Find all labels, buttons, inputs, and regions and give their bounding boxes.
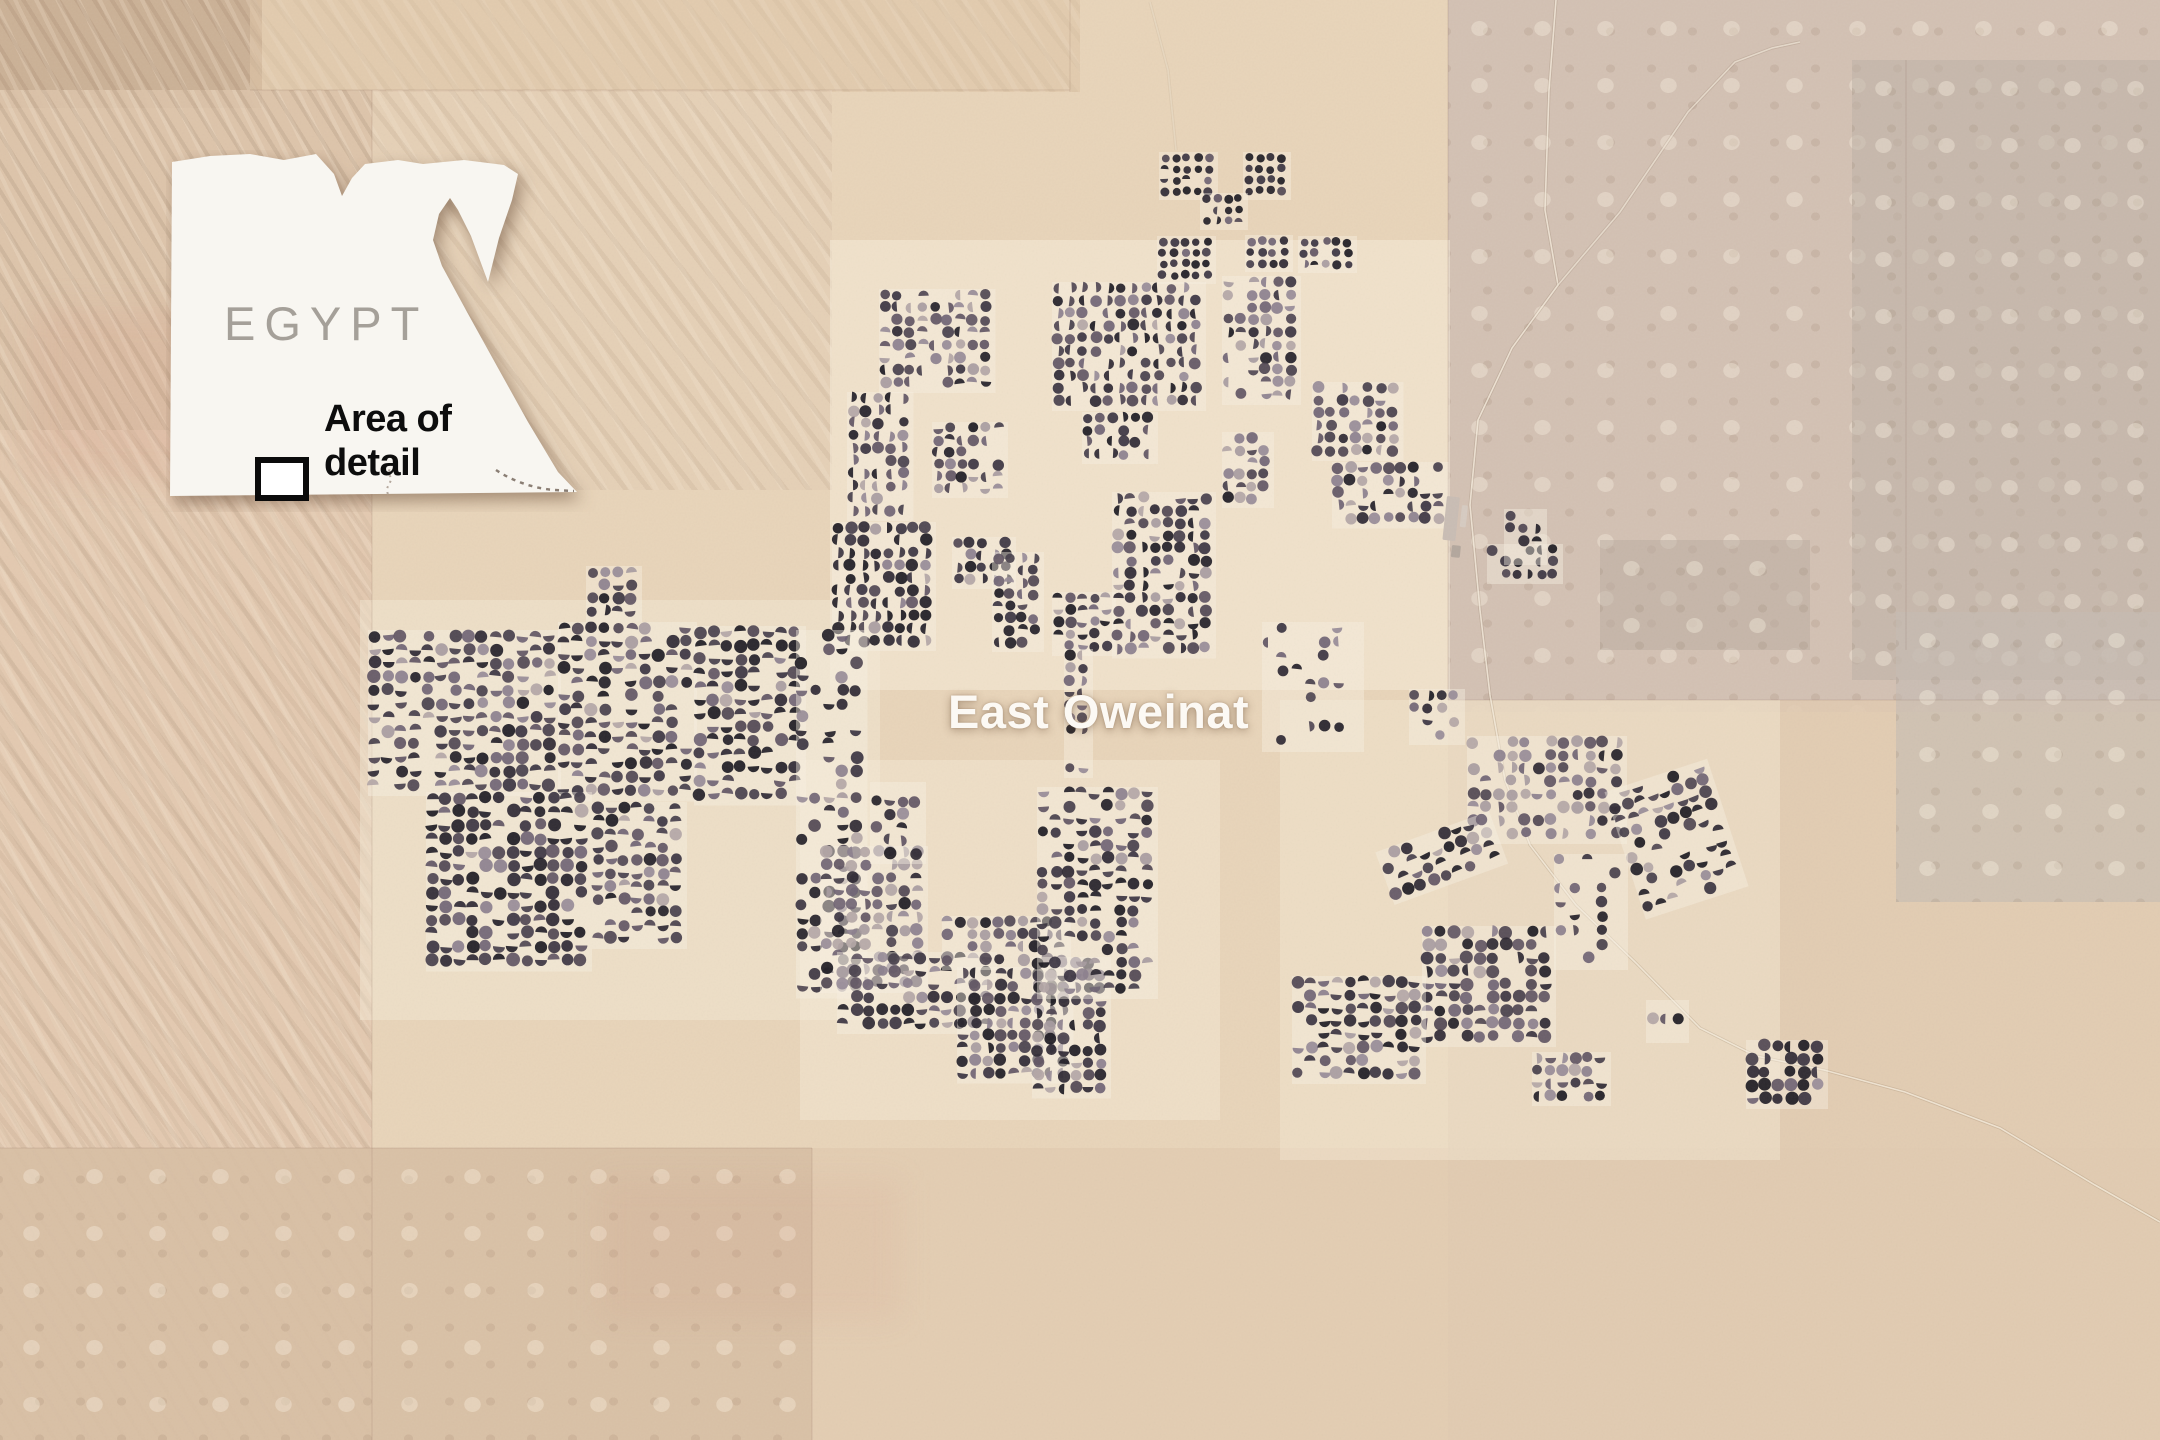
pivot-circle [721, 640, 732, 651]
pivot-circle [1019, 1055, 1030, 1066]
pivot-circle [1506, 775, 1517, 786]
pivot-circle [880, 301, 891, 312]
pivot-circle [1388, 421, 1398, 431]
pivot-circle [1319, 720, 1331, 732]
pivot-circle [1499, 926, 1512, 939]
pivot-circle [1064, 970, 1076, 982]
pivot-circle [956, 364, 965, 373]
pivot-circle [934, 484, 943, 493]
pivot-circle [646, 906, 656, 916]
pivot-circle [1189, 358, 1201, 370]
region-label: East Oweinat [948, 684, 1249, 739]
pivot-circle [426, 953, 439, 966]
pivot-circle [945, 458, 956, 469]
pivot-circle [954, 352, 966, 364]
area-of-detail-line1: Area of [324, 398, 451, 440]
pivot-circle [1031, 1045, 1043, 1057]
pivot-circle [544, 658, 555, 669]
pivot-circle [823, 644, 835, 656]
area-of-detail-line2: detail [324, 442, 420, 484]
pivot-circle [1138, 630, 1150, 642]
pivot-circle [1699, 785, 1712, 798]
pivot-circle [532, 657, 542, 667]
pivot-circle [626, 649, 637, 660]
pivot-circle [516, 764, 528, 776]
pivot-circle [1285, 352, 1296, 363]
pivot-circle [619, 892, 631, 904]
desert-road [1470, 0, 2160, 1222]
pivot-circle [1064, 906, 1074, 916]
pivot-circle [1548, 556, 1558, 566]
pivot-circle [1279, 259, 1288, 268]
pivot-circle [494, 887, 507, 900]
pivot-circle [872, 442, 884, 454]
pivot-circle [1538, 1030, 1551, 1043]
pivot-circle [477, 753, 489, 765]
pivot-circle [652, 758, 663, 769]
pivot-circle [1039, 982, 1050, 993]
pivot-circle [1257, 480, 1268, 491]
pivot-circle [1064, 877, 1076, 889]
pivot-circle [971, 1042, 982, 1053]
pivot-circle [1278, 666, 1289, 677]
pivot-circle [748, 625, 760, 637]
pivot-circle [965, 561, 976, 572]
pivot-circle [671, 932, 682, 943]
pivot-circle [1004, 625, 1015, 636]
pivot-circle [1546, 789, 1556, 799]
pivot-circle [858, 521, 869, 532]
pivot-circle [693, 789, 705, 801]
pivot-circle [1176, 505, 1188, 517]
pivot-circle [1065, 650, 1076, 661]
pivot-circle [1357, 476, 1367, 486]
pivot-circle [480, 819, 491, 830]
pivot-circle [1049, 916, 1062, 929]
pivot-circle [775, 694, 788, 707]
pivot-circle [1276, 735, 1286, 745]
pivot-circle [846, 574, 856, 584]
pivot-circle [1383, 975, 1395, 987]
pivot-circle [1224, 314, 1234, 324]
pivot-circle [930, 302, 940, 312]
satellite-map-page: { "satellite": { "region_label": "East O… [0, 0, 2160, 1440]
pivot-circle [821, 962, 833, 974]
pivot-circle [1126, 507, 1136, 517]
pivot-circle [1064, 801, 1076, 813]
pivot-circle [1449, 717, 1459, 727]
pivot-circle [1448, 1004, 1461, 1017]
pivot-circle [1434, 1017, 1447, 1030]
pivot-circle [611, 771, 623, 783]
pivot-circle [897, 807, 909, 819]
pivot-circle [656, 893, 669, 906]
pivot-circle [1332, 486, 1344, 498]
pivot-circle [1268, 175, 1276, 183]
pivot-circle [734, 760, 746, 772]
pivot-circle [1107, 412, 1118, 423]
pivot-circle [1179, 372, 1188, 381]
pivot-circle [1112, 630, 1123, 641]
pivot-circle [943, 377, 954, 388]
pivot-circle [572, 717, 584, 729]
pivot-circle [1187, 642, 1199, 654]
pivot-circle [1310, 248, 1319, 257]
pivot-circle [1409, 702, 1418, 711]
pivot-circle [909, 610, 920, 621]
pivot-circle [1586, 751, 1596, 761]
pivot-circle [558, 661, 571, 674]
settlement-building [1451, 545, 1461, 558]
pivot-circle [850, 820, 863, 833]
pivot-circle [1004, 588, 1015, 599]
pivot-circle [892, 291, 901, 300]
pivot-circle [1280, 236, 1288, 244]
pivot-circle [1422, 938, 1435, 951]
pivot-circle [1116, 957, 1127, 968]
pivot-circle [502, 671, 514, 683]
pivot-circle [1786, 1092, 1799, 1105]
pivot-circle [1066, 630, 1075, 639]
pivot-circle [889, 1017, 901, 1029]
pivot-circle [821, 977, 832, 988]
pivot-circle [559, 703, 571, 715]
pivot-circle [1083, 426, 1093, 436]
pivot-circle [477, 685, 488, 696]
pivot-circle [1200, 530, 1210, 540]
pivot-circle [1174, 542, 1185, 553]
pivot-circle [667, 635, 680, 648]
pivot-circle [846, 884, 858, 896]
pivot-circle [1114, 905, 1125, 916]
pivot-circle [492, 846, 505, 859]
pivot-circle [1586, 777, 1597, 788]
pivot-circle [491, 752, 502, 763]
pivot-circle [1103, 826, 1113, 836]
pivot-circle [1268, 238, 1276, 246]
pivot-circle [1165, 334, 1175, 344]
pivot-circle [1487, 991, 1500, 1004]
pivot-circle [1190, 295, 1201, 306]
pivot-circle [427, 873, 438, 884]
pivot-circle [899, 885, 910, 896]
pivot-circle [543, 738, 556, 751]
pivot-circle [1116, 309, 1126, 319]
pivot-circle [1141, 295, 1152, 306]
pivot-circle [942, 340, 952, 350]
pivot-circle [438, 886, 451, 899]
pivot-circle [1634, 837, 1645, 848]
pivot-circle [1095, 1083, 1106, 1094]
pivot-circle [1526, 939, 1537, 950]
pivot-circle [657, 816, 668, 827]
pivot-circle [490, 658, 502, 670]
pivot-circle [720, 694, 733, 707]
pivot-circle [1258, 445, 1269, 456]
pivot-circle [968, 459, 979, 470]
pivot-circle [1320, 1055, 1331, 1066]
pivot-circle [1384, 512, 1394, 522]
pivot-circle [1089, 825, 1101, 837]
pivot-circle [808, 926, 821, 939]
pivot-circle [573, 730, 584, 741]
pivot-circle [869, 621, 881, 633]
pivot-circle [1705, 798, 1717, 810]
pivot-circle [1020, 968, 1031, 979]
pivot-circle [1119, 450, 1129, 460]
pivot-circle [1058, 1071, 1070, 1083]
pivot-circle [1331, 475, 1343, 487]
pivot-circle [1647, 1012, 1659, 1024]
pivot-circle [530, 739, 542, 751]
pivot-circle [670, 905, 682, 917]
pivot-circle [981, 301, 992, 312]
pivot-circle [1091, 854, 1102, 865]
pivot-circle [1571, 801, 1583, 813]
pivot-circle [507, 804, 521, 818]
pivot-circle [521, 925, 534, 938]
pivot-circle [1051, 866, 1063, 878]
pivot-circle [543, 685, 553, 695]
pivot-circle [835, 671, 847, 683]
pivot-circle [1409, 690, 1419, 700]
pivot-circle [1396, 1002, 1408, 1014]
pivot-circle [1437, 703, 1447, 713]
pivot-circle [1020, 1018, 1031, 1029]
pivot-circle [1247, 290, 1258, 301]
pivot-circle [1170, 259, 1178, 267]
pivot-circle [1167, 395, 1177, 405]
pivot-circle [1038, 826, 1048, 836]
pivot-circle [1054, 395, 1065, 406]
pivot-circle [1798, 1092, 1811, 1105]
pivot-circle [613, 592, 625, 604]
pivot-circle [502, 724, 515, 737]
pivot-circle [994, 1053, 1006, 1065]
pivot-circle [507, 832, 520, 845]
pivot-circle [548, 899, 560, 911]
pivot-circle [1548, 544, 1557, 553]
pivot-circle [846, 938, 856, 948]
pivot-circle [863, 1006, 874, 1017]
pivot-circle [1332, 260, 1341, 269]
pivot-circle [977, 563, 986, 572]
pivot-circle [850, 977, 862, 989]
pivot-circle [1018, 954, 1030, 966]
pivot-circle [479, 859, 492, 872]
pivot-circle [1344, 474, 1356, 486]
pivot-half-circle [1357, 975, 1369, 982]
pivot-circle [693, 652, 705, 664]
pivot-circle [1512, 1030, 1524, 1042]
pivot-circle [1005, 612, 1016, 623]
pivot-circle [652, 649, 665, 662]
pivot-circle [1326, 420, 1337, 431]
pivot-circle [1033, 1069, 1044, 1080]
pivot-circle [1357, 512, 1369, 524]
pivot-circle [605, 869, 616, 880]
pivot-circle [1083, 1046, 1093, 1056]
pivot-circle [885, 444, 896, 455]
pivot-circle [1223, 468, 1234, 479]
pivot-circle [490, 644, 503, 657]
pivot-circle [668, 785, 678, 795]
pivot-circle [968, 363, 980, 375]
pivot-circle [1173, 154, 1181, 162]
pivot-circle [670, 828, 682, 840]
pivot-circle [1191, 382, 1202, 393]
pivot-circle [1006, 930, 1016, 940]
pivot-circle [916, 992, 927, 1003]
pivot-circle [1204, 271, 1212, 279]
pivot-circle [598, 783, 610, 795]
pivot-circle [1095, 1069, 1107, 1081]
pivot-circle [966, 549, 977, 560]
pivot-circle [1557, 1090, 1568, 1101]
pivot-circle [886, 482, 896, 492]
pivot-circle [957, 1018, 967, 1028]
pivot-circle [934, 459, 944, 469]
pivot-circle [899, 897, 911, 909]
pivot-circle [1494, 750, 1506, 762]
pivot-circle [889, 965, 901, 977]
pivot-circle [1476, 814, 1487, 825]
pivot-circle [1558, 737, 1569, 748]
pivot-circle [1183, 186, 1191, 194]
pivot-circle [453, 833, 464, 844]
pivot-circle [891, 314, 902, 325]
pivot-circle [1214, 194, 1223, 203]
pivot-circle [1077, 332, 1087, 342]
pivot-circle [1667, 812, 1679, 824]
pivot-circle [1077, 930, 1088, 941]
pivot-circle [478, 644, 489, 655]
pivot-circle [983, 1028, 995, 1040]
pivot-circle [478, 697, 489, 708]
pivot-circle [1234, 433, 1244, 443]
pivot-circle [1471, 844, 1482, 855]
pivot-circle [1102, 641, 1112, 651]
pivot-circle [1758, 1078, 1771, 1091]
pivot-circle [882, 560, 892, 570]
pivot-circle [1584, 788, 1595, 799]
pivot-circle [600, 704, 612, 716]
pivot-circle [1182, 154, 1190, 162]
pivot-circle [1448, 690, 1457, 699]
pivot-circle [903, 991, 915, 1003]
pivot-circle [1597, 939, 1608, 950]
pivot-circle [946, 470, 957, 481]
pivot-circle [1016, 637, 1027, 648]
pivot-circle [944, 447, 955, 458]
pivot-circle [1247, 469, 1257, 479]
pivot-circle [1201, 493, 1212, 504]
pivot-circle [983, 1067, 994, 1078]
pivot-circle [1518, 535, 1529, 546]
pivot-circle [1583, 952, 1595, 964]
pivot-circle [1154, 370, 1164, 380]
pivot-circle [1115, 800, 1125, 810]
pivot-circle [1200, 605, 1212, 617]
pivot-circle [574, 792, 585, 803]
pivot-circle [1016, 612, 1027, 623]
pivot-circle [1286, 314, 1296, 324]
pivot-circle [1311, 445, 1322, 456]
pivot-circle [1508, 751, 1518, 761]
pivot-circle [1525, 965, 1537, 977]
pivot-circle [1065, 334, 1075, 344]
pivot-circle [735, 679, 748, 692]
pivot-circle [478, 847, 491, 860]
pivot-circle [1162, 155, 1170, 163]
pivot-circle [1704, 882, 1716, 894]
pivot-circle [1151, 556, 1161, 566]
pivot-circle [1538, 952, 1549, 963]
pivot-circle [653, 730, 666, 743]
pivot-circle [1435, 1006, 1446, 1017]
pivot-circle [572, 623, 584, 635]
pivot-circle [1784, 1078, 1797, 1091]
pivot-circle [1376, 421, 1386, 431]
pivot-circle [547, 872, 559, 884]
pivot-circle [1345, 990, 1356, 1001]
pivot-circle [1285, 326, 1296, 337]
pivot-circle [591, 827, 603, 839]
pivot-circle [1435, 939, 1447, 951]
pivot-circle [808, 819, 821, 832]
pivot-circle [1158, 270, 1167, 279]
pivot-circle [1083, 414, 1092, 423]
pivot-circle [1058, 1032, 1070, 1044]
pivot-circle [466, 872, 479, 885]
pivot-circle [1076, 968, 1088, 980]
pivot-circle [1343, 239, 1352, 248]
pivot-circle [626, 580, 637, 591]
pivot-circle [503, 658, 514, 669]
pivot-circle [1204, 177, 1212, 185]
pivot-circle [1267, 186, 1275, 194]
pivot-circle [1246, 494, 1257, 505]
pivot-circle [694, 775, 706, 787]
pivot-circle [1258, 260, 1267, 269]
pivot-circle [546, 886, 560, 900]
pivot-circle [872, 886, 883, 897]
pivot-circle [876, 1003, 888, 1015]
pivot-circle [1090, 295, 1102, 307]
pivot-circle [1054, 370, 1065, 381]
pivot-circle [941, 991, 953, 1003]
pivot-circle [1526, 979, 1537, 990]
pivot-circle [1032, 1032, 1043, 1043]
pivot-circle [968, 435, 979, 446]
pivot-circle [644, 803, 655, 814]
pivot-circle [1286, 341, 1296, 351]
pivot-circle [1021, 1005, 1031, 1015]
pivot-circle [369, 656, 382, 669]
pivot-circle [1512, 939, 1524, 951]
pivot-circle [666, 675, 679, 688]
pivot-circle [1102, 395, 1112, 405]
pivot-circle [558, 744, 570, 756]
pivot-circle [1272, 341, 1282, 351]
pivot-circle [1597, 911, 1608, 922]
pivot-circle [1581, 1066, 1592, 1077]
pivot-circle [1521, 789, 1531, 799]
pivot-circle [1096, 1059, 1106, 1069]
pivot-circle [632, 829, 644, 841]
pivot-circle [410, 672, 421, 683]
pivot-circle [1083, 1069, 1094, 1080]
